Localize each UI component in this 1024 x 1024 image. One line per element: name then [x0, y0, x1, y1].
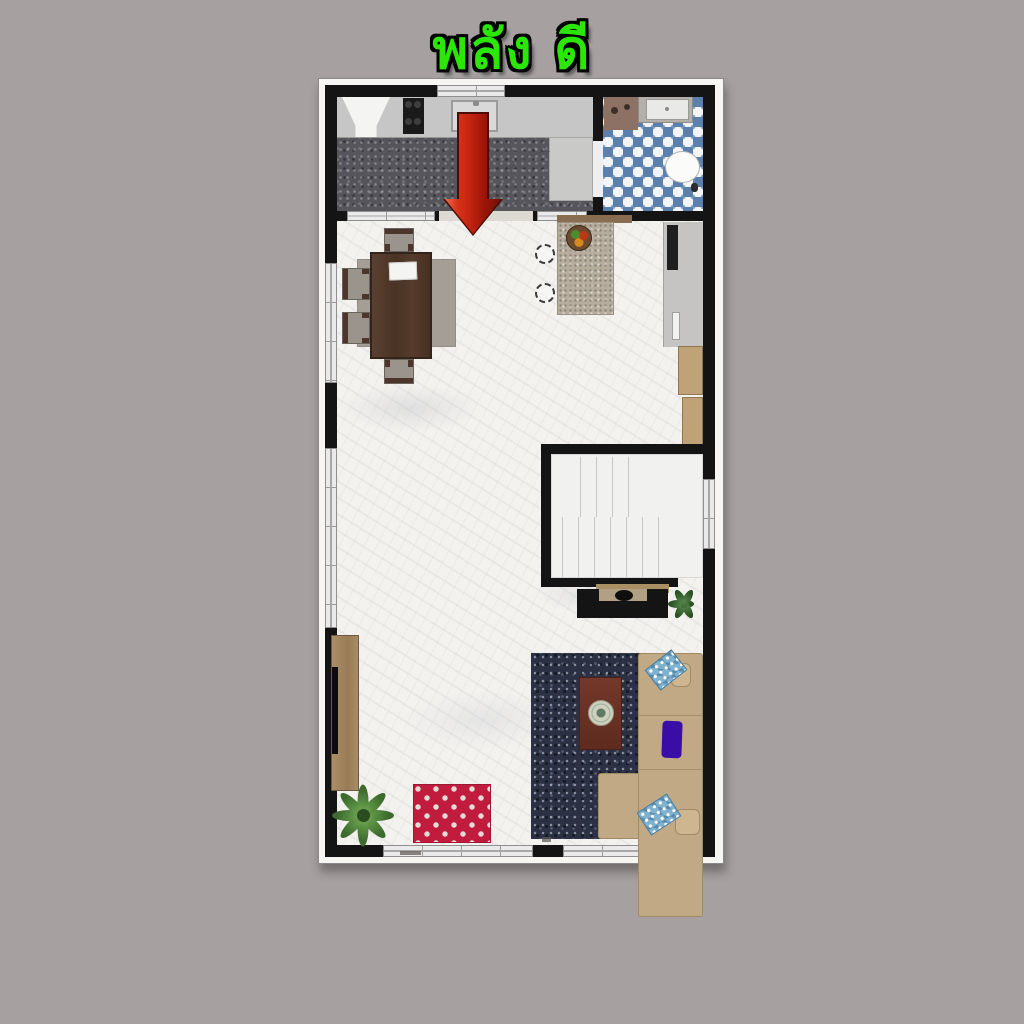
dining-chair-left-upper — [342, 268, 370, 300]
cooktop — [403, 98, 424, 134]
tv-wall-cabinet — [331, 635, 359, 791]
faucet-icon — [473, 101, 479, 106]
tan-cabinet-lower — [682, 397, 703, 445]
floor-plan — [318, 78, 724, 864]
top-wall-window — [437, 85, 505, 97]
red-polka-rug — [413, 784, 491, 843]
rug-corner-mark — [542, 837, 551, 842]
bar-stool-2 — [535, 283, 555, 303]
shower-mat — [604, 97, 638, 130]
drain-dot — [624, 104, 630, 110]
vanity-counter — [638, 94, 693, 123]
burner-icon — [405, 101, 412, 108]
purple-pillow — [661, 721, 682, 759]
dining-chair-left-lower — [342, 312, 370, 344]
tv-console — [577, 589, 668, 618]
toilet — [665, 151, 700, 183]
kitchen-side-counter — [549, 137, 593, 201]
dining-table — [370, 252, 432, 359]
dining-chair-top — [384, 228, 414, 252]
burner-icon — [414, 118, 421, 125]
burner-icon — [414, 101, 421, 108]
potted-plant-large — [329, 785, 397, 847]
watermark-mark — [400, 851, 421, 855]
tan-cabinet-upper — [678, 346, 703, 395]
stairwell-left-wall — [541, 444, 551, 585]
stairwell-top-wall — [551, 444, 703, 454]
cabinet-handle — [672, 312, 680, 340]
top-wall — [337, 85, 703, 97]
wall-tv — [332, 667, 338, 754]
stair-steps-upper — [580, 457, 636, 517]
tall-appliance — [667, 225, 678, 270]
burner-icon — [405, 118, 412, 125]
plant-center — [357, 809, 370, 822]
left-wall-window-upper — [325, 263, 337, 383]
fruit-bowl-icon — [566, 225, 592, 251]
sofa-main-section — [638, 653, 703, 917]
faucet-icon — [665, 107, 669, 111]
right-wall — [703, 85, 715, 857]
right-wall-window — [703, 479, 715, 549]
drain-dot — [611, 107, 618, 114]
right-counter — [663, 222, 703, 347]
staircase — [551, 454, 703, 578]
bathroom-door — [593, 141, 603, 197]
console-bowl — [615, 590, 633, 601]
table-placemat — [389, 262, 418, 281]
vanity-sink-basin — [646, 99, 689, 120]
dining-chair-bottom — [384, 359, 414, 384]
left-wall-window-lower — [325, 448, 337, 628]
coffee-table — [579, 677, 622, 750]
centerpiece-plate — [588, 700, 614, 726]
bathroom-drain — [691, 183, 698, 192]
bar-stool-1 — [535, 244, 555, 264]
kitchen-wall-window-left — [347, 211, 435, 221]
potted-plant-small — [666, 587, 702, 622]
stair-steps-lower — [562, 517, 664, 577]
